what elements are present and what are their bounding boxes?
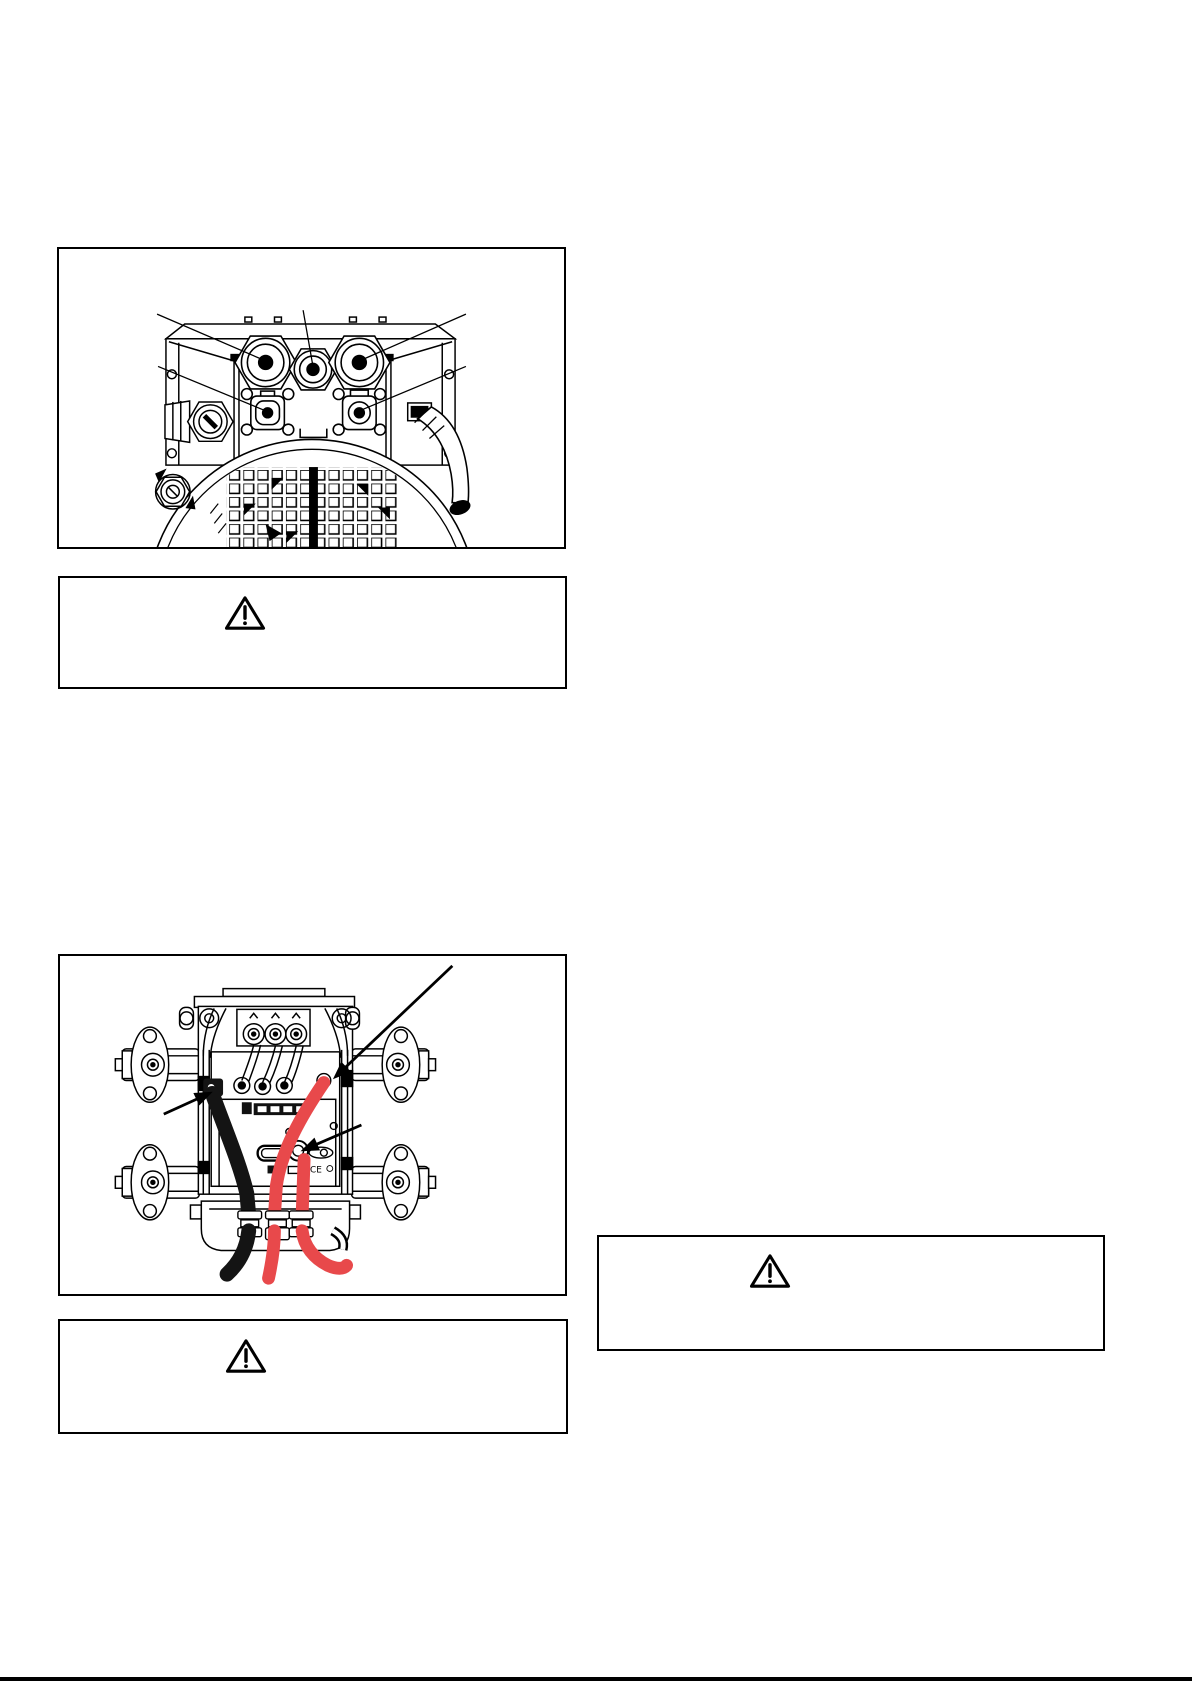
warning-triangle-icon — [224, 594, 266, 632]
figure-box-cabling: CE — [58, 954, 567, 1296]
bottom-left-fitting — [156, 470, 195, 509]
warning-box-2 — [58, 1319, 568, 1434]
ce-mark: CE — [310, 1165, 322, 1175]
connector-panel-drawing — [59, 249, 564, 547]
red-cable-1-tail — [269, 1231, 275, 1278]
warning-triangle-icon — [225, 1337, 267, 1375]
manual-page: CE — [0, 0, 1192, 1685]
footer-rule — [0, 1677, 1192, 1681]
warning-box-1 — [58, 576, 567, 689]
warning-box-right — [597, 1235, 1105, 1351]
red-cable-2 — [302, 1160, 304, 1215]
left-valve-fitting — [165, 401, 233, 442]
cabling-drawing: CE — [60, 956, 565, 1294]
figure-box-connector-panel — [57, 247, 566, 549]
warning-triangle-icon — [749, 1252, 791, 1290]
